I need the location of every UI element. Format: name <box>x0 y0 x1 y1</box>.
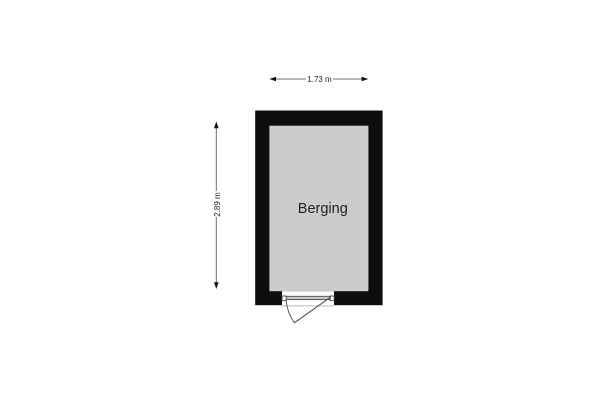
svg-text:Berging: Berging <box>298 201 348 217</box>
svg-text:2.89 m: 2.89 m <box>213 192 222 217</box>
svg-text:1.73 m: 1.73 m <box>307 75 332 84</box>
